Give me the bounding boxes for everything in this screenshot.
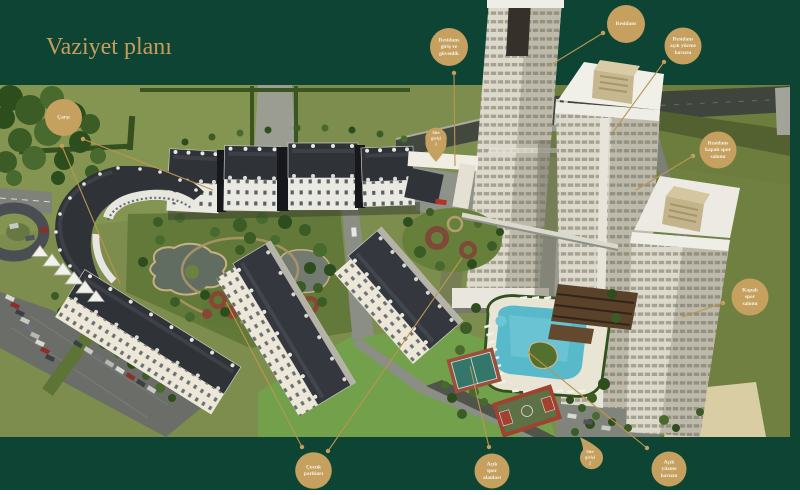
svg-text:Çocuk: Çocuk: [306, 464, 321, 470]
svg-text:güvenlik: güvenlik: [439, 51, 459, 57]
svg-text:Kapalı: Kapalı: [742, 288, 758, 294]
svg-text:girişi: girişi: [431, 136, 442, 141]
svg-text:Site: Site: [586, 449, 593, 454]
svg-text:girişi: girişi: [585, 455, 596, 460]
svg-text:havuzu: havuzu: [675, 50, 692, 56]
svg-text:Vaziyet planı: Vaziyet planı: [46, 34, 172, 60]
svg-text:Çarşı: Çarşı: [57, 115, 70, 121]
svg-text:Residans: Residans: [616, 21, 637, 27]
svg-text:Residans: Residans: [439, 38, 460, 44]
svg-text:yüzme: yüzme: [662, 466, 678, 472]
svg-text:spor: spor: [745, 294, 756, 300]
svg-text:salonu: salonu: [711, 154, 726, 160]
svg-text:havuzu: havuzu: [661, 473, 678, 479]
svg-text:Site: Site: [432, 130, 439, 135]
svg-text:Açık: Açık: [487, 462, 498, 468]
svg-text:açık yüzme: açık yüzme: [670, 43, 697, 49]
svg-text:Açık: Açık: [664, 460, 675, 466]
svg-text:parkları: parkları: [304, 471, 324, 477]
svg-text:giriş ve: giriş ve: [441, 44, 458, 50]
svg-text:alanları: alanları: [483, 475, 501, 481]
svg-text:Residans: Residans: [673, 37, 694, 43]
svg-text:salonu: salonu: [743, 301, 758, 307]
svg-text:Residans: Residans: [708, 141, 729, 147]
svg-text:spor: spor: [487, 468, 498, 474]
svg-text:kapalı spor: kapalı spor: [705, 147, 732, 153]
